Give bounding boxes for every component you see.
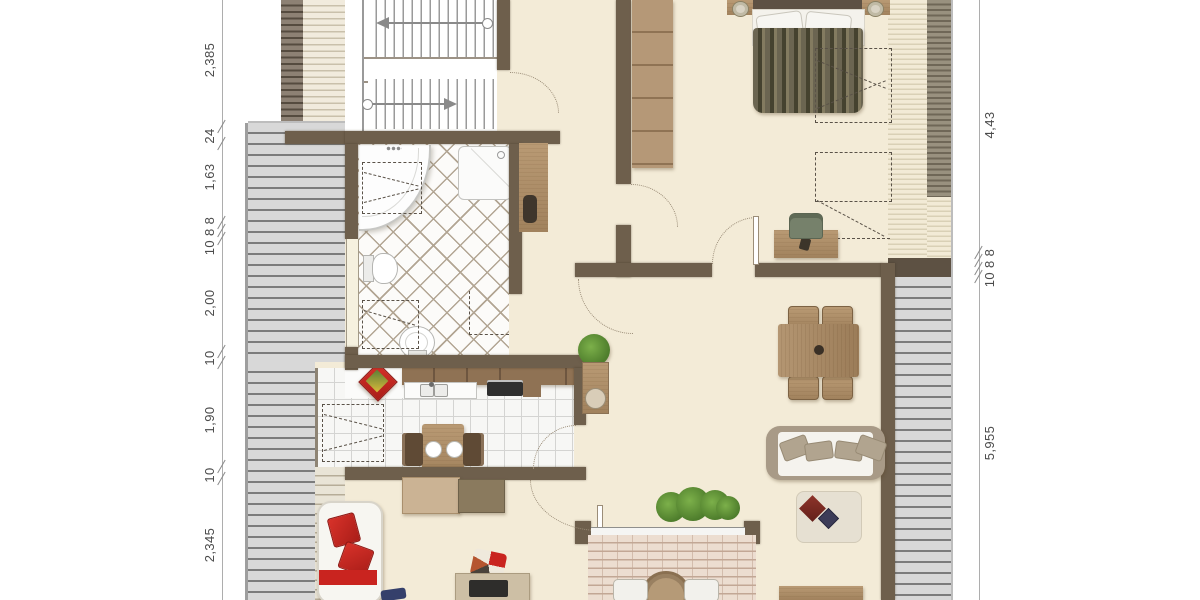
roof-slope-line [469, 291, 470, 335]
stair-down-arrow-line [372, 103, 444, 105]
wall-bathroom-west-upper [345, 144, 358, 239]
right-roof-hatch-bedroom [888, 0, 927, 258]
kitchen-chair-left [402, 433, 423, 466]
daybed-red-band [319, 570, 377, 585]
wall-bedroom-west-upper [616, 0, 631, 184]
right-roof-gutter [927, 0, 951, 197]
dimension-label: 5,955 [983, 413, 997, 473]
bedside-lamp-icon [867, 1, 884, 17]
bed-headboard [752, 0, 863, 9]
shower-drain [497, 151, 505, 159]
sofa-cushion [804, 440, 834, 462]
bathtub-faucet-icon [386, 146, 402, 151]
roof-slope-dashes-icon [362, 162, 422, 214]
bedside-lamp-icon [732, 1, 749, 17]
right-roof-hatch-bedroom-low [927, 197, 951, 258]
dining-chair [788, 376, 819, 400]
kitchen-sideboard-light [402, 477, 460, 514]
toilet-bowl [372, 253, 398, 284]
dimension-label: 10 8 8 [203, 206, 217, 266]
stair-up-start-post [482, 18, 493, 29]
dimension-label: 10 [203, 445, 217, 505]
roof-hatch-topleft-dark [281, 0, 303, 131]
shelf-bowl [585, 388, 606, 409]
dimension-label: 4,43 [983, 95, 997, 155]
wall-topleft [285, 131, 345, 144]
left-terrace-decking-lower [248, 362, 315, 600]
wardrobe [632, 0, 673, 168]
dimension-label: 10 8 8 [983, 238, 997, 298]
dining-table-knob [814, 345, 824, 355]
desk-chair [380, 587, 406, 600]
left-dimension-line [222, 0, 223, 600]
media-sideboard [779, 586, 863, 600]
left-terrace-top-edge [248, 121, 345, 123]
stair-up-arrow-icon [376, 17, 389, 29]
kitchen-faucet-icon [429, 382, 434, 387]
floor-plan-canvas: 2,385 24 1,63 10 8 8 2,00 10 1,90 10 2,3… [0, 0, 1200, 600]
hall-cabinet-basin [523, 195, 537, 223]
left-terrace-decking-upper [248, 123, 345, 362]
computer-monitor [469, 580, 508, 597]
kitchen-stove [487, 380, 523, 396]
table-plate [446, 441, 463, 458]
right-outer-edge [951, 0, 953, 600]
roof-slope-dashes-icon [322, 404, 384, 462]
kitchen-chair-right [463, 433, 484, 466]
bathroom-window [346, 239, 359, 347]
roof-slope-dashes-icon [815, 152, 892, 202]
balcony-chair [613, 579, 648, 600]
stair-left-edge [362, 0, 364, 131]
dimension-label: 2,385 [203, 30, 217, 90]
dimension-label: 1,90 [203, 390, 217, 450]
wall-stair-east [497, 0, 510, 70]
left-terrace-edge [245, 123, 248, 600]
stair-down-arrow-icon [444, 98, 457, 110]
dimension-label: 2,00 [203, 273, 217, 333]
dimension-label: 1,63 [203, 147, 217, 207]
dimension-label: 2,345 [203, 515, 217, 575]
kitchen-sideboard-dark [458, 479, 505, 513]
vanity-chair [789, 213, 823, 239]
stair-up-arrow-line [388, 22, 484, 24]
roof-hatch-topleft-light [303, 0, 345, 131]
right-terrace-decking [895, 277, 951, 600]
wall-living-north-b [755, 263, 882, 277]
door-leaf [753, 216, 759, 265]
wall-east [881, 263, 895, 600]
plant-hedge-icon [716, 496, 740, 520]
roof-slope-line [469, 334, 509, 335]
wall-kitchen-north [345, 355, 586, 368]
right-dimension-line [979, 0, 980, 600]
balcony-chair [684, 579, 719, 600]
kitchen-west-window [315, 368, 318, 467]
kitchen-tall-cabinet [523, 368, 541, 397]
dining-chair [822, 376, 853, 400]
wall-living-north-a [575, 263, 712, 277]
table-plate [425, 441, 442, 458]
dimension-label: 10 [203, 328, 217, 388]
right-roof-transition [888, 258, 951, 277]
kitchen-sink-bowl-right [434, 384, 448, 397]
